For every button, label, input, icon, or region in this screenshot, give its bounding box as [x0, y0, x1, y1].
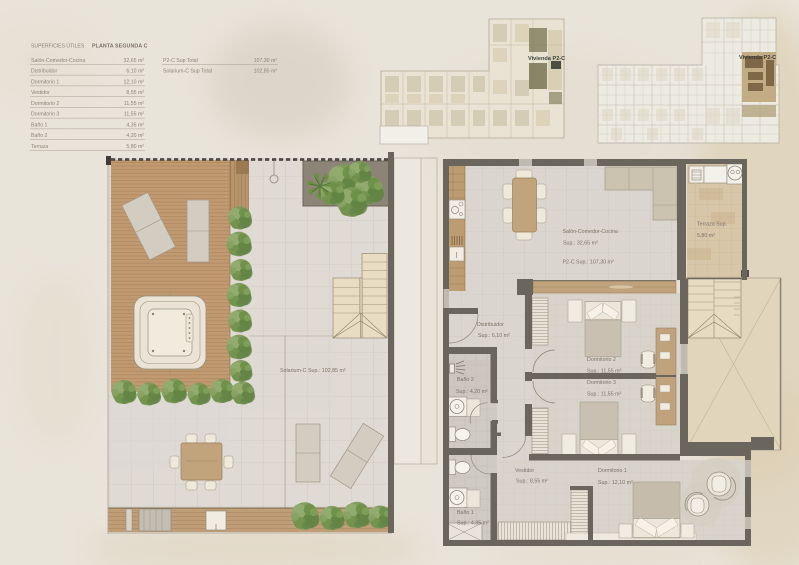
svg-text:Sup.: 6,10 m²: Sup.: 6,10 m²: [478, 333, 510, 339]
svg-text:Sup.: 12,10 m²: Sup.: 12,10 m²: [598, 480, 633, 486]
svg-text:Sup.: 4,20 m²: Sup.: 4,20 m²: [456, 389, 488, 395]
svg-text:5,80 m²: 5,80 m²: [697, 233, 715, 239]
svg-text:SUPERFICIES ÚTILES: SUPERFICIES ÚTILES: [31, 42, 85, 49]
svg-text:Dormitorio 3: Dormitorio 3: [587, 380, 616, 386]
svg-text:Vestidor: Vestidor: [31, 90, 50, 96]
svg-text:Solarium-C Sup Total: Solarium-C Sup Total: [163, 69, 212, 75]
svg-text:Solarium-C Sup.: 102,85 m²: Solarium-C Sup.: 102,85 m²: [280, 368, 346, 374]
svg-text:Distribuidor: Distribuidor: [31, 69, 58, 75]
svg-text:Sup.: 11,55 m²: Sup.: 11,55 m²: [587, 368, 622, 374]
svg-text:32,65 m²: 32,65 m²: [124, 58, 145, 64]
svg-text:Terraza Sup.: Terraza Sup.: [697, 222, 727, 228]
svg-text:Baño 2: Baño 2: [31, 133, 48, 139]
svg-text:Vivienda P2-C: Vivienda P2-C: [528, 56, 565, 62]
svg-text:4,20 m²: 4,20 m²: [126, 133, 144, 139]
svg-text:Sup.: 4,35 m²: Sup.: 4,35 m²: [457, 521, 489, 527]
svg-text:11,55 m²: 11,55 m²: [124, 101, 144, 107]
svg-text:PLANTA SEGUNDA C: PLANTA SEGUNDA C: [92, 43, 148, 49]
svg-text:Vivienda P2-C: Vivienda P2-C: [739, 55, 776, 61]
svg-text:Dormitorio 1: Dormitorio 1: [598, 468, 627, 474]
svg-text:Distribuidor: Distribuidor: [477, 322, 504, 328]
svg-text:11,55 m²: 11,55 m²: [124, 112, 144, 118]
svg-text:102,85 m²: 102,85 m²: [254, 69, 278, 75]
svg-text:Sup.: 11,55 m²: Sup.: 11,55 m²: [587, 392, 622, 398]
svg-text:5,80 m²: 5,80 m²: [126, 144, 144, 150]
svg-text:12,10 m²: 12,10 m²: [124, 79, 145, 85]
svg-text:Vestidor: Vestidor: [515, 468, 534, 474]
svg-text:P2-C Sup Total: P2-C Sup Total: [163, 58, 198, 64]
svg-text:Sup.: 32,65 m²: Sup.: 32,65 m²: [563, 240, 598, 246]
svg-text:Salón-Comedor-Cocina: Salón-Comedor-Cocina: [563, 229, 618, 235]
svg-text:Terraza: Terraza: [31, 144, 48, 150]
svg-text:Baño 1: Baño 1: [31, 122, 48, 128]
svg-text:8,55 m²: 8,55 m²: [126, 90, 144, 96]
svg-text:Dormitorio 2: Dormitorio 2: [31, 101, 59, 107]
svg-text:Baño 1: Baño 1: [457, 510, 474, 516]
svg-text:Dormitorio 1: Dormitorio 1: [31, 79, 59, 85]
svg-text:P2-C Sup.: 107,30 m²: P2-C Sup.: 107,30 m²: [563, 259, 614, 265]
svg-text:6,10 m²: 6,10 m²: [126, 69, 144, 75]
svg-text:4,35 m²: 4,35 m²: [126, 122, 144, 128]
svg-text:Dormitorio 2: Dormitorio 2: [587, 357, 616, 363]
svg-text:Salón-Comedor-Cocina: Salón-Comedor-Cocina: [31, 58, 85, 64]
svg-text:Dormitorio 3: Dormitorio 3: [31, 112, 59, 118]
svg-text:107,30 m²: 107,30 m²: [254, 58, 278, 64]
svg-text:Baño 2: Baño 2: [457, 377, 474, 383]
svg-text:Sup.: 8,55 m²: Sup.: 8,55 m²: [516, 479, 548, 485]
